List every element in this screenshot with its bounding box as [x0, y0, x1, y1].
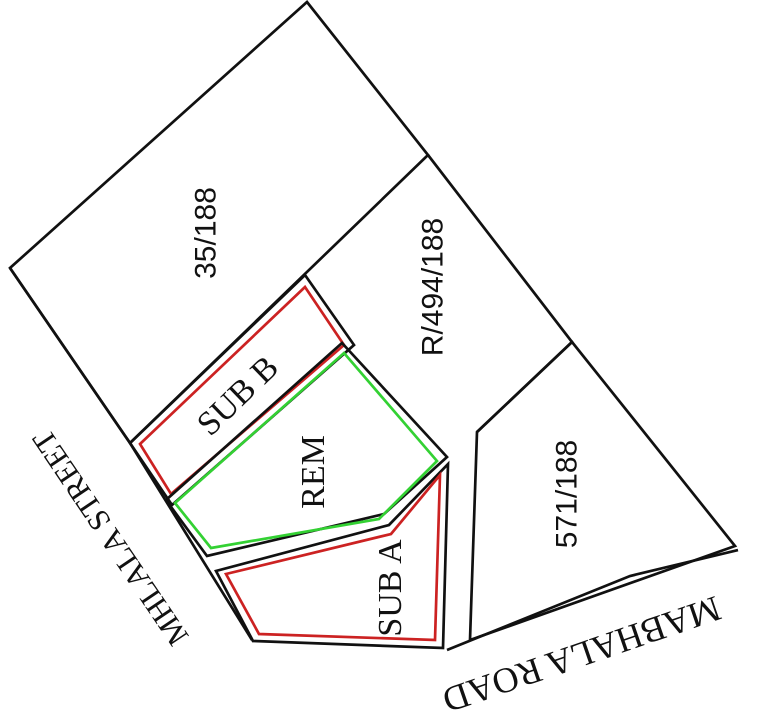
label-parcel-rem: REM	[295, 435, 332, 509]
label-street-mhlala: MHLALA STREET	[25, 423, 195, 652]
parcel-r494-188-boundary	[428, 155, 572, 432]
label-parcel-sub-a: SUB A	[372, 539, 409, 637]
survey-diagram: 35/188 R/494/188 571/188 SUB B REM SUB A…	[0, 0, 759, 720]
label-parcel-r494-188: R/494/188	[417, 218, 450, 356]
label-road-mabhala: MABHALA ROAD	[438, 588, 726, 720]
label-parcel-35-188: 35/188	[190, 187, 223, 279]
label-parcel-sub-b: SUB B	[190, 349, 286, 443]
diagram-canvas: 35/188 R/494/188 571/188 SUB B REM SUB A…	[0, 0, 759, 720]
label-parcel-571-188: 571/188	[551, 440, 584, 548]
